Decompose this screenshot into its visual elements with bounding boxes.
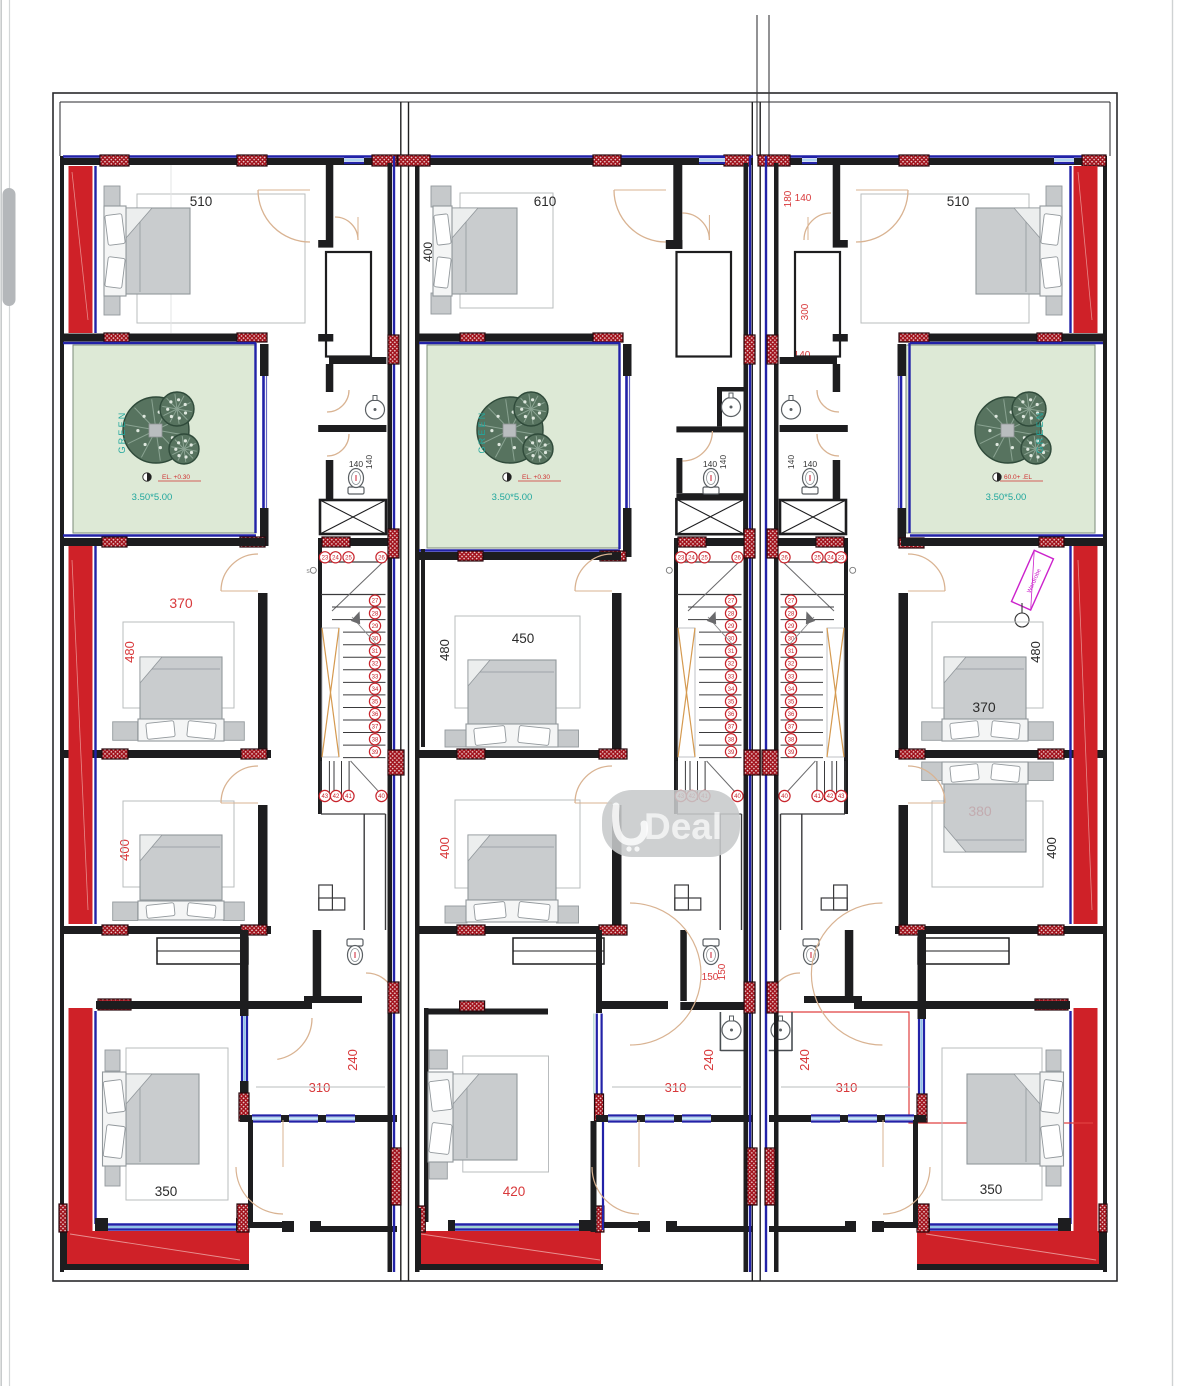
svg-text:32: 32: [728, 662, 735, 668]
svg-text:28: 28: [728, 611, 735, 617]
svg-text:3.50*5.00: 3.50*5.00: [986, 492, 1027, 503]
svg-text:32: 32: [788, 662, 795, 668]
svg-text:33: 33: [372, 674, 379, 680]
svg-text:29: 29: [728, 624, 735, 630]
svg-text:26: 26: [734, 555, 741, 561]
svg-text:25: 25: [701, 555, 708, 561]
svg-text:Deal: Deal: [644, 806, 722, 847]
svg-text:26: 26: [378, 555, 385, 561]
svg-text:23: 23: [322, 555, 329, 561]
svg-text:24: 24: [332, 555, 339, 561]
svg-text:240: 240: [701, 1049, 716, 1071]
svg-text:310: 310: [309, 1080, 331, 1095]
svg-text:350: 350: [155, 1184, 178, 1199]
svg-text:380: 380: [968, 803, 992, 819]
svg-text:34: 34: [728, 687, 735, 693]
svg-text:480: 480: [122, 641, 137, 663]
svg-text:480: 480: [1028, 641, 1043, 663]
svg-text:240: 240: [345, 1049, 360, 1071]
svg-text:300: 300: [800, 303, 811, 320]
svg-text:33: 33: [788, 674, 795, 680]
svg-text:23: 23: [678, 555, 685, 561]
svg-text:24: 24: [827, 555, 834, 561]
svg-text:39: 39: [372, 750, 379, 756]
svg-text:41: 41: [345, 794, 352, 800]
svg-text:40: 40: [378, 794, 385, 800]
svg-text:240: 240: [797, 1049, 812, 1071]
svg-text:37: 37: [372, 725, 379, 731]
svg-text:23: 23: [838, 555, 845, 561]
svg-text:140: 140: [703, 459, 717, 469]
svg-text:450: 450: [512, 631, 535, 646]
svg-text:33: 33: [728, 674, 735, 680]
svg-text:28: 28: [788, 611, 795, 617]
svg-text:27: 27: [372, 599, 379, 605]
svg-text:25: 25: [345, 555, 352, 561]
svg-text:26: 26: [781, 555, 788, 561]
svg-text:30: 30: [372, 637, 379, 643]
svg-text:27: 27: [788, 599, 795, 605]
svg-text:3.50*5.00: 3.50*5.00: [492, 492, 533, 503]
svg-text:34: 34: [372, 687, 379, 693]
svg-text:400: 400: [117, 839, 132, 861]
svg-text:60.0+ .EL: 60.0+ .EL: [1004, 474, 1032, 481]
svg-text:350: 350: [980, 1182, 1003, 1197]
svg-text:GREEN: GREEN: [1035, 410, 1045, 453]
svg-text:40: 40: [781, 794, 788, 800]
svg-text:510: 510: [947, 194, 970, 209]
svg-text:42: 42: [333, 794, 340, 800]
svg-text:3.50*5.00: 3.50*5.00: [132, 492, 173, 503]
svg-text:37: 37: [728, 725, 735, 731]
svg-text:420: 420: [503, 1184, 526, 1199]
svg-text:GREEN: GREEN: [117, 410, 127, 453]
svg-text:28: 28: [372, 611, 379, 617]
svg-text:38: 38: [372, 737, 379, 743]
svg-text:31: 31: [788, 649, 795, 655]
svg-text:510: 510: [190, 194, 213, 209]
svg-text:EL. +0.30: EL. +0.30: [162, 474, 190, 481]
svg-text:400: 400: [1044, 837, 1059, 859]
svg-text:140: 140: [349, 459, 363, 469]
svg-text:34: 34: [788, 687, 795, 693]
svg-text:140: 140: [786, 455, 796, 469]
svg-text:370: 370: [169, 595, 193, 611]
svg-text:32: 32: [372, 662, 379, 668]
svg-text:38: 38: [728, 737, 735, 743]
svg-text:27: 27: [728, 599, 735, 605]
svg-text:24: 24: [688, 555, 695, 561]
svg-text:140: 140: [803, 459, 817, 469]
svg-text:610: 610: [534, 194, 557, 209]
svg-text:25: 25: [814, 555, 821, 561]
svg-text:400: 400: [437, 837, 452, 859]
svg-text:370: 370: [972, 699, 996, 715]
svg-text:39: 39: [728, 750, 735, 756]
svg-text:40: 40: [734, 794, 741, 800]
svg-text:39: 39: [788, 750, 795, 756]
svg-text:36: 36: [372, 712, 379, 718]
svg-text:310: 310: [665, 1080, 687, 1095]
svg-text:37: 37: [788, 725, 795, 731]
svg-text:36: 36: [788, 712, 795, 718]
svg-text:GREEN: GREEN: [477, 410, 487, 453]
svg-text:140: 140: [364, 455, 374, 469]
svg-text:480: 480: [437, 639, 452, 661]
svg-text:30: 30: [728, 637, 735, 643]
svg-text:38: 38: [788, 737, 795, 743]
svg-text:310: 310: [836, 1080, 858, 1095]
svg-text:29: 29: [372, 624, 379, 630]
svg-text:43: 43: [838, 794, 845, 800]
svg-text:31: 31: [372, 649, 379, 655]
svg-text:180: 180: [783, 190, 794, 207]
svg-text:140: 140: [718, 455, 728, 469]
svg-text:31: 31: [728, 649, 735, 655]
svg-text:36: 36: [728, 712, 735, 718]
svg-text:35: 35: [372, 700, 379, 706]
svg-text:140: 140: [795, 193, 812, 204]
svg-text:29: 29: [788, 624, 795, 630]
svg-text:150: 150: [717, 963, 728, 980]
svg-text:41: 41: [814, 794, 821, 800]
svg-text:EL. +0.30: EL. +0.30: [522, 474, 550, 481]
svg-text:42: 42: [827, 794, 834, 800]
svg-text:43: 43: [321, 794, 328, 800]
svg-text:35: 35: [788, 700, 795, 706]
svg-text:35: 35: [728, 700, 735, 706]
